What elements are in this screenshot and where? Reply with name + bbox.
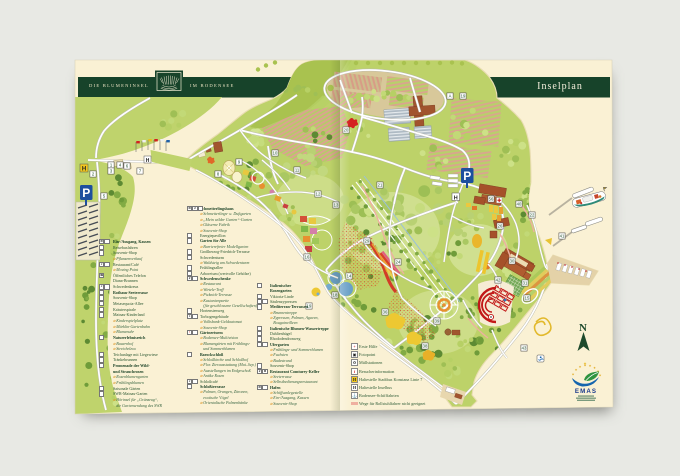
- svg-text:H: H: [454, 195, 458, 201]
- svg-text:19: 19: [461, 93, 466, 98]
- svg-text:15: 15: [525, 295, 530, 300]
- svg-text:41: 41: [560, 233, 565, 238]
- svg-text:24: 24: [396, 259, 401, 264]
- svg-text:39: 39: [435, 318, 440, 323]
- svg-text:P: P: [82, 186, 90, 200]
- svg-text:11: 11: [295, 167, 300, 172]
- svg-text:29: 29: [365, 238, 370, 243]
- svg-text:12: 12: [316, 191, 321, 196]
- svg-text:31: 31: [523, 280, 528, 285]
- svg-text:A: A: [449, 93, 452, 98]
- svg-text:56: 56: [489, 196, 494, 201]
- svg-text:22: 22: [530, 212, 535, 217]
- svg-text:42: 42: [496, 277, 501, 282]
- svg-text:16: 16: [305, 254, 310, 259]
- svg-text:26: 26: [498, 223, 503, 228]
- svg-text:21: 21: [378, 182, 383, 187]
- svg-text:H: H: [82, 167, 86, 173]
- svg-text:10: 10: [273, 150, 278, 155]
- svg-text:P: P: [463, 169, 471, 183]
- svg-text:EMAS: EMAS: [575, 388, 597, 395]
- svg-text:36: 36: [383, 309, 388, 314]
- svg-text:43: 43: [522, 345, 527, 350]
- svg-text:30: 30: [510, 258, 515, 263]
- svg-text:N: N: [579, 322, 587, 334]
- svg-text:40: 40: [517, 201, 522, 206]
- svg-text:H: H: [146, 158, 150, 164]
